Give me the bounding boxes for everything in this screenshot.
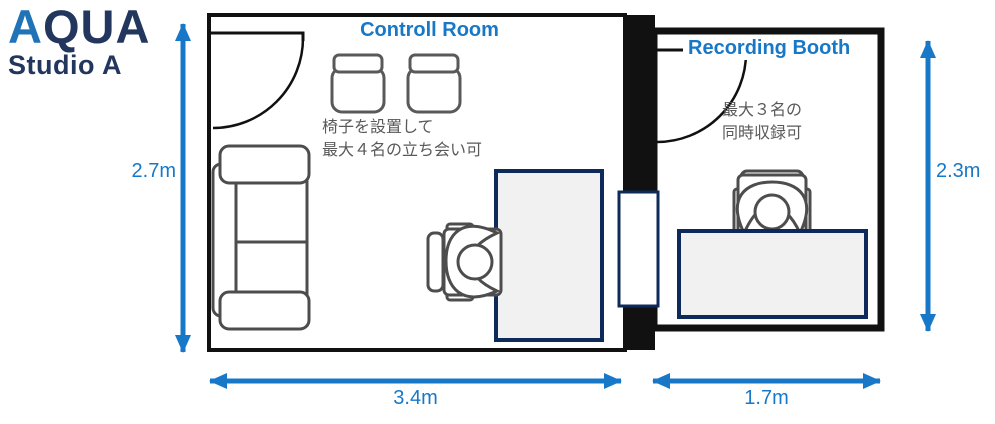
brand-name: AQUA (8, 2, 150, 51)
recording-booth-title: Recording Booth (683, 37, 855, 60)
booth-note-line1: 最大３名の (722, 99, 802, 122)
studio-name: Studio A (8, 51, 150, 79)
control-room-note-line2: 最大４名の立ち会い可 (322, 139, 482, 162)
dimension-label-control-room-height: 2.7m (118, 160, 176, 183)
booth-note: 最大３名の 同時収録可 (722, 99, 802, 145)
person-chair-icon (734, 171, 810, 235)
person-chair-icon (428, 224, 501, 300)
dimension-label-booth-width: 1.7m (651, 387, 882, 410)
floor-plan-page: AQUA Studio A Controll Room Recording Bo… (0, 0, 995, 424)
stool-icon (408, 55, 460, 112)
brand-rest-letters: QUA (43, 0, 150, 53)
booth-desk (679, 231, 866, 317)
sofa-icon (213, 146, 309, 329)
window-between-rooms (619, 192, 658, 306)
control-room-note: 椅子を設置して 最大４名の立ち会い可 (322, 116, 482, 162)
brand-accent-letter: A (8, 0, 43, 53)
control-room-title: Controll Room (337, 19, 522, 42)
control-room-note-line1: 椅子を設置して (322, 116, 482, 139)
booth-note-line2: 同時収録可 (722, 122, 802, 145)
stool-icon (332, 55, 384, 112)
dimension-label-booth-height: 2.3m (936, 160, 980, 183)
brand-logo: AQUA Studio A (8, 2, 150, 80)
dimension-label-control-room-width: 3.4m (208, 387, 623, 410)
control-room-desk (496, 171, 602, 340)
